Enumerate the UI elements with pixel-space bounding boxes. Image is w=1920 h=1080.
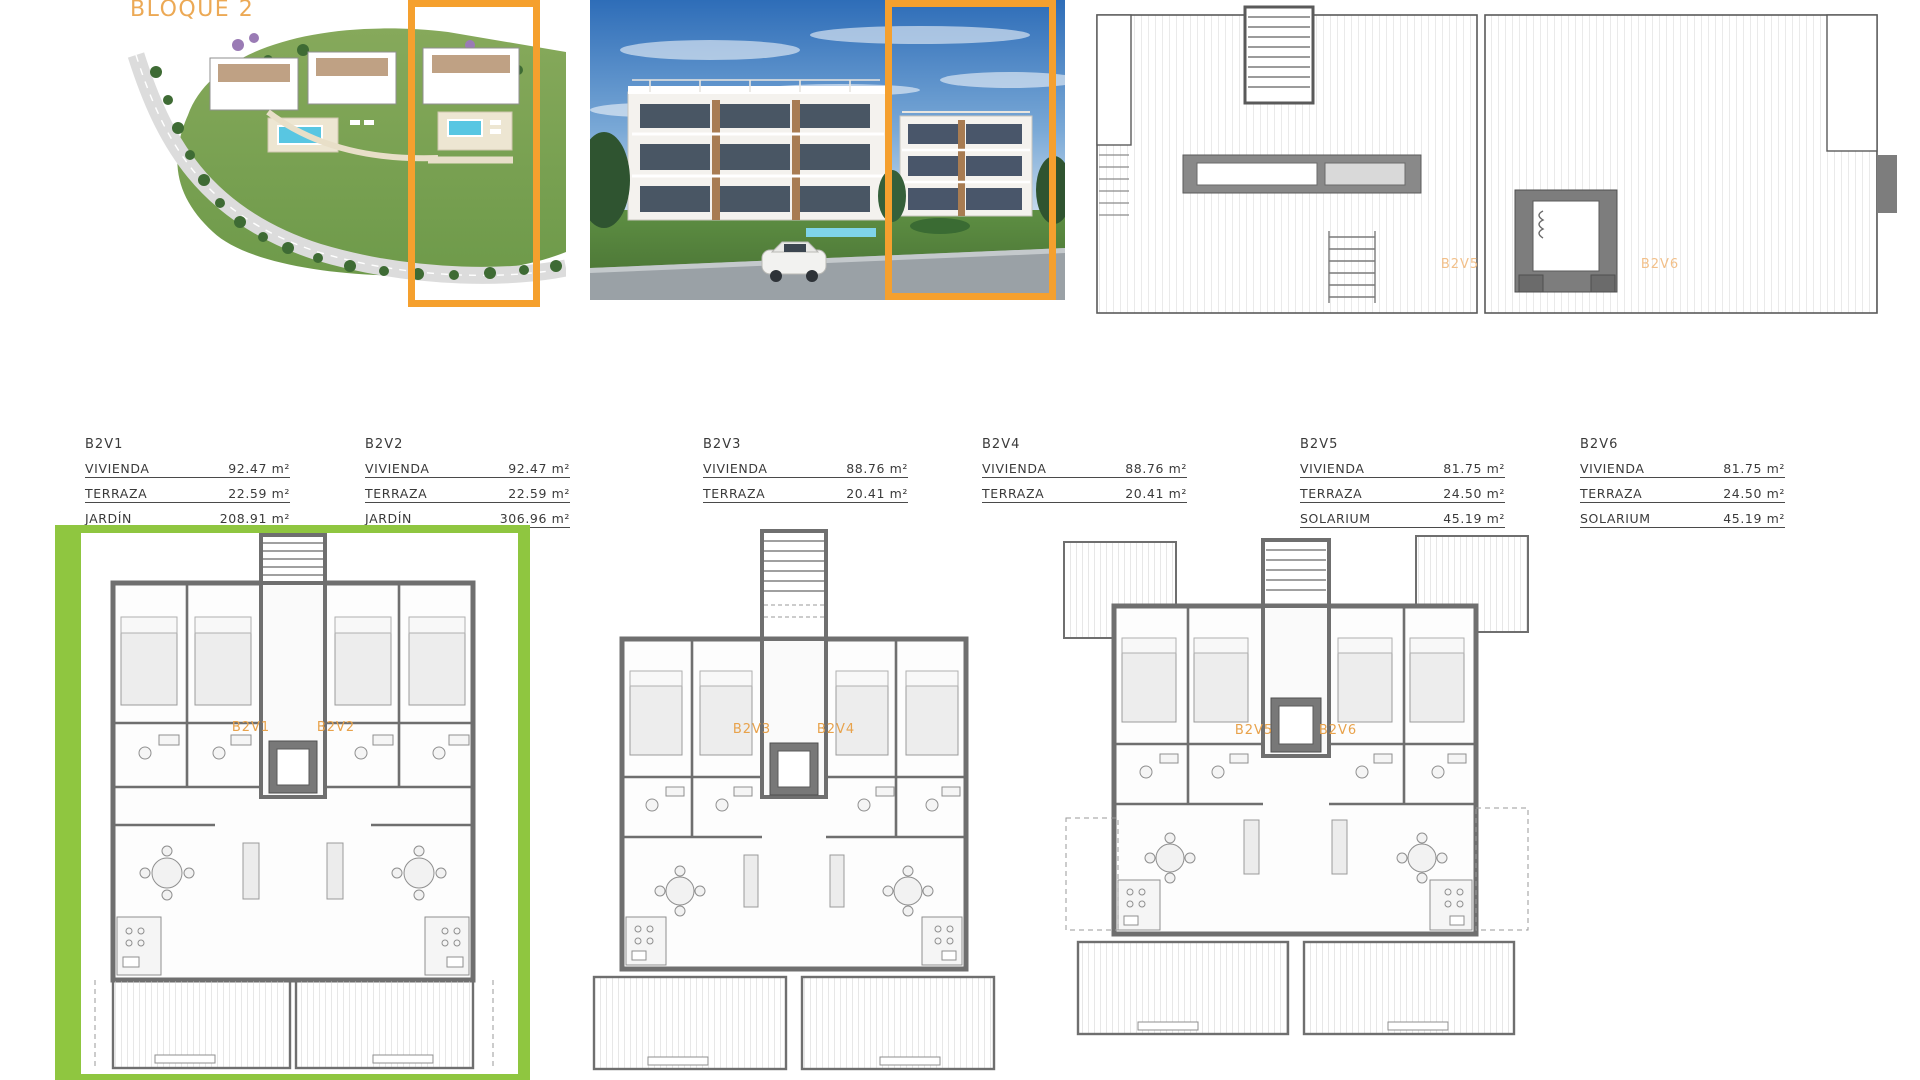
second-floor-plan: B2V5 B2V6 bbox=[1058, 528, 1533, 1080]
dashed-balcony-right bbox=[1476, 808, 1528, 930]
unit-table-b2v1: B2V1 VIVIENDA92.47 m² TERRAZA22.59 m² JA… bbox=[85, 437, 290, 534]
sofa-right bbox=[327, 843, 343, 899]
unit-id: B2V6 bbox=[1580, 437, 1785, 452]
row-value: 81.75 m² bbox=[1443, 461, 1505, 476]
row-label: JARDÍN bbox=[85, 511, 132, 526]
kitchen-right bbox=[425, 917, 469, 975]
row-value: 24.50 m² bbox=[1723, 486, 1785, 501]
row-value: 208.91 m² bbox=[220, 511, 290, 526]
row-label: TERRAZA bbox=[1580, 486, 1642, 501]
unit-id: B2V3 bbox=[703, 437, 908, 452]
unit-table-b2v5: B2V5 VIVIENDA81.75 m² TERRAZA24.50 m² SO… bbox=[1300, 437, 1505, 534]
stair-tower bbox=[1263, 540, 1329, 606]
table-row: VIVIENDA81.75 m² bbox=[1300, 459, 1505, 478]
unit-table-b2v4: B2V4 VIVIENDA88.76 m² TERRAZA20.41 m² bbox=[982, 437, 1187, 509]
roof-unit-label: B2V5 bbox=[1441, 257, 1479, 272]
unit-id: B2V1 bbox=[85, 437, 290, 452]
highlight-box-photo bbox=[885, 0, 1056, 300]
row-label: JARDÍN bbox=[365, 511, 412, 526]
row-label: VIVIENDA bbox=[703, 461, 767, 476]
first-floor-plan: B2V3 B2V4 bbox=[588, 525, 1000, 1080]
landing bbox=[1183, 155, 1421, 193]
row-label: VIVIENDA bbox=[85, 461, 149, 476]
row-label: SOLARIUM bbox=[1580, 511, 1651, 526]
unit-id: B2V2 bbox=[365, 437, 570, 452]
unit-table-b2v3: B2V3 VIVIENDA88.76 m² TERRAZA20.41 m² bbox=[703, 437, 908, 509]
plan-unit-label: B2V1 bbox=[232, 720, 270, 735]
stair-tower bbox=[261, 535, 325, 585]
row-value: 45.19 m² bbox=[1443, 511, 1505, 526]
table-row: TERRAZA24.50 m² bbox=[1300, 484, 1505, 503]
table-row: TERRAZA24.50 m² bbox=[1580, 484, 1785, 503]
roof-plan: B2V5 B2V6 bbox=[1085, 5, 1905, 323]
row-value: 88.76 m² bbox=[846, 461, 908, 476]
ground-floor-plan-graphic: B2V1 B2V2 bbox=[55, 525, 530, 1080]
roof-plan-graphic: B2V5 B2V6 bbox=[1085, 5, 1905, 323]
table-row: VIVIENDA92.47 m² bbox=[85, 459, 290, 478]
kitchen-right bbox=[922, 917, 962, 965]
row-label: TERRAZA bbox=[1300, 486, 1362, 501]
plan-unit-label: B2V6 bbox=[1319, 723, 1357, 738]
row-value: 45.19 m² bbox=[1723, 511, 1785, 526]
table-row: SOLARIUM45.19 m² bbox=[1580, 509, 1785, 528]
row-value: 24.50 m² bbox=[1443, 486, 1505, 501]
table-row: TERRAZA22.59 m² bbox=[85, 484, 290, 503]
pool bbox=[806, 228, 876, 237]
unit-table-b2v2: B2V2 VIVIENDA92.47 m² TERRAZA22.59 m² JA… bbox=[365, 437, 570, 534]
sofa-left bbox=[1244, 820, 1259, 874]
row-value: 81.75 m² bbox=[1723, 461, 1785, 476]
row-label: TERRAZA bbox=[982, 486, 1044, 501]
kitchen-left bbox=[117, 917, 161, 975]
sofa-right bbox=[1332, 820, 1347, 874]
unit-id: B2V4 bbox=[982, 437, 1187, 452]
stair-tower bbox=[1245, 7, 1313, 103]
plan-unit-label: B2V4 bbox=[817, 722, 855, 737]
plan-unit-label: B2V3 bbox=[733, 722, 771, 737]
row-label: TERRAZA bbox=[703, 486, 765, 501]
row-value: 92.47 m² bbox=[228, 461, 290, 476]
second-floor-plan-graphic: B2V5 B2V6 bbox=[1058, 528, 1533, 1080]
kitchen-right bbox=[1430, 880, 1472, 930]
side-block-right bbox=[1877, 155, 1897, 213]
table-row: VIVIENDA92.47 m² bbox=[365, 459, 570, 478]
sofa-left bbox=[744, 855, 758, 907]
sofa-right bbox=[830, 855, 844, 907]
row-value: 92.47 m² bbox=[508, 461, 570, 476]
unit-id: B2V5 bbox=[1300, 437, 1505, 452]
table-row: VIVIENDA88.76 m² bbox=[982, 459, 1187, 478]
row-label: VIVIENDA bbox=[1580, 461, 1644, 476]
plan-sheet: BLOQUE 2 bbox=[0, 0, 1920, 1080]
row-label: TERRAZA bbox=[365, 486, 427, 501]
building-left bbox=[628, 80, 888, 220]
terraces bbox=[1078, 942, 1514, 1034]
sofa-left bbox=[243, 843, 259, 899]
terraces bbox=[594, 977, 994, 1069]
row-label: VIVIENDA bbox=[1300, 461, 1364, 476]
row-label: VIVIENDA bbox=[365, 461, 429, 476]
table-row: TERRAZA20.41 m² bbox=[982, 484, 1187, 503]
plan-unit-label: B2V2 bbox=[317, 720, 355, 735]
stair-tower bbox=[762, 531, 826, 639]
highlight-box-aerial bbox=[408, 0, 540, 307]
table-row: SOLARIUM45.19 m² bbox=[1300, 509, 1505, 528]
row-label: VIVIENDA bbox=[982, 461, 1046, 476]
row-value: 20.41 m² bbox=[1125, 486, 1187, 501]
row-label: SOLARIUM bbox=[1300, 511, 1371, 526]
elevator-shaft bbox=[1515, 190, 1617, 292]
first-floor-plan-graphic: B2V3 B2V4 bbox=[588, 525, 1000, 1080]
kitchen-left bbox=[1118, 880, 1160, 930]
row-value: 22.59 m² bbox=[228, 486, 290, 501]
elevator-shaft bbox=[1271, 698, 1321, 752]
unit-table-b2v6: B2V6 VIVIENDA81.75 m² TERRAZA24.50 m² SO… bbox=[1580, 437, 1785, 534]
ground-floor-plan: B2V1 B2V2 bbox=[55, 525, 530, 1080]
elevator-shaft bbox=[269, 741, 317, 793]
row-value: 306.96 m² bbox=[500, 511, 570, 526]
roof-unit-label: B2V6 bbox=[1641, 257, 1679, 272]
row-value: 22.59 m² bbox=[508, 486, 570, 501]
table-row: TERRAZA20.41 m² bbox=[703, 484, 908, 503]
row-value: 20.41 m² bbox=[846, 486, 908, 501]
row-label: TERRAZA bbox=[85, 486, 147, 501]
plan-unit-label: B2V5 bbox=[1235, 723, 1273, 738]
kitchen-left bbox=[626, 917, 666, 965]
elevator-shaft bbox=[770, 743, 818, 795]
dashed-balcony-left bbox=[1066, 818, 1118, 930]
table-row: TERRAZA22.59 m² bbox=[365, 484, 570, 503]
table-row: VIVIENDA88.76 m² bbox=[703, 459, 908, 478]
row-value: 88.76 m² bbox=[1125, 461, 1187, 476]
table-row: VIVIENDA81.75 m² bbox=[1580, 459, 1785, 478]
